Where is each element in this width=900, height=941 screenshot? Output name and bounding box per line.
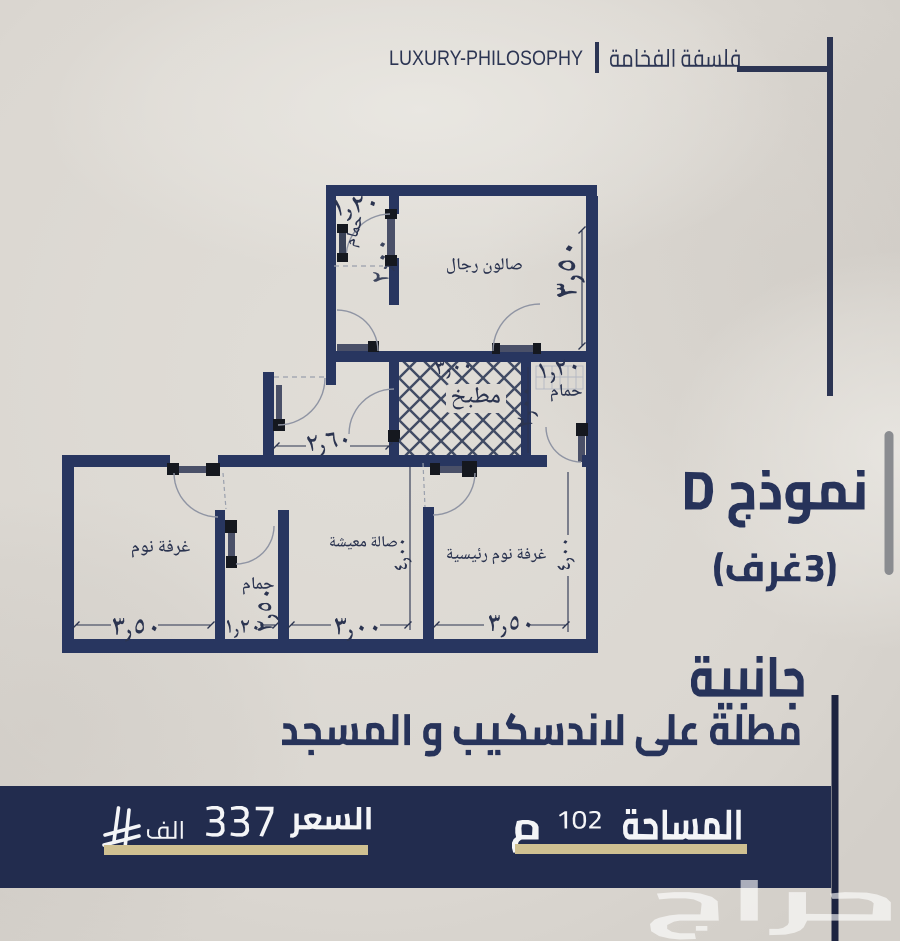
svg-text:LUXURY-PHILOSOPHY: LUXURY-PHILOSOPHY: [389, 46, 583, 70]
